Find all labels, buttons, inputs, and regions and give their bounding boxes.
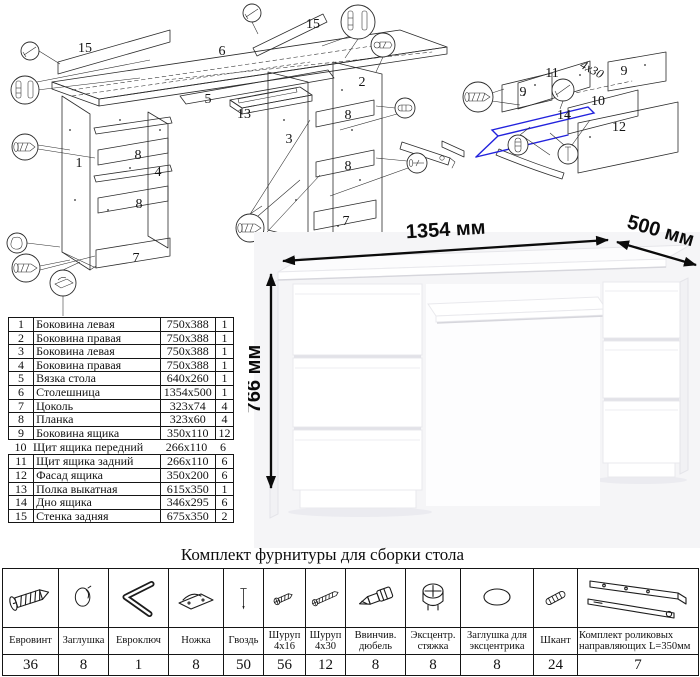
parts-cell-name: Фасад ящика <box>34 468 161 482</box>
parts-cell-num: 5 <box>9 372 34 386</box>
parts-cell-qty: 1 <box>215 318 233 332</box>
hardware-row <box>3 569 699 628</box>
parts-row: 3Боковина левая750x3881 <box>9 345 234 359</box>
parts-cell-qty: 6 <box>215 455 233 469</box>
parts-cell-name: Боковина правая <box>34 358 161 372</box>
nail-icon <box>224 569 264 628</box>
part-number-label: 15 <box>78 41 92 56</box>
parts-cell-qty: 1 <box>215 482 233 496</box>
part-number-label: 13 <box>237 107 251 122</box>
parts-table-segment: 11Щит ящика задний266x110612Фасад ящика3… <box>8 454 234 523</box>
parts-list-table: 1Боковина левая750x38812Боковина правая7… <box>8 317 236 523</box>
parts-cell-name: Стенка задняя <box>34 509 161 523</box>
parts-cell-qty: 6 <box>215 468 233 482</box>
hardware-name: Шуруп 4x30 <box>306 628 346 655</box>
parts-cell-size: 350x200 <box>160 468 215 482</box>
parts-cell: 10 <box>8 440 33 455</box>
hardware-name: Заглушка <box>59 628 109 655</box>
parts-cell-size: 750x388 <box>160 345 215 359</box>
drawer-rails-icon <box>578 569 699 628</box>
part-number-label: 12 <box>612 120 626 135</box>
part-number-label: 2 <box>359 75 366 90</box>
parts-cell-num: 15 <box>9 509 34 523</box>
part-number-label: 7 <box>133 251 140 266</box>
hardware-name: Шкант <box>534 628 578 655</box>
leader-lines <box>492 89 590 155</box>
wood-dowel-icon <box>534 569 578 628</box>
parts-cell-name: Щит ящика задний <box>34 455 161 469</box>
parts-cell-num: 1 <box>9 318 34 332</box>
parts-cell-num: 7 <box>9 399 34 413</box>
dimension-label: 766 мм <box>248 345 265 414</box>
parts-cell-qty: 2 <box>215 509 233 523</box>
parts-cell-qty: 1 <box>215 345 233 359</box>
parts-cell-num: 3 <box>9 345 34 359</box>
part-number-label: 8 <box>345 159 352 174</box>
hardware-qty: 24 <box>534 655 578 676</box>
parts-cell-num: 6 <box>9 385 34 399</box>
parts-cell-num: 9 <box>9 426 34 440</box>
part-number-label: 14 <box>557 108 571 123</box>
parts-cell-num: 11 <box>9 455 34 469</box>
parts-cell-name: Боковина левая <box>34 345 161 359</box>
hardware-qty: 36 <box>3 655 59 676</box>
part-number-label: 9 <box>621 64 628 79</box>
part-number-label: 1 <box>76 156 83 171</box>
parts-cell-size: 615x350 <box>160 482 215 496</box>
parts-row: 10Щит ящика передний266x1106 <box>8 440 234 454</box>
hex-key-icon <box>109 569 169 628</box>
hardware-qty: 12 <box>306 655 346 676</box>
parts-cell-qty: 1 <box>215 331 233 345</box>
parts-cell-size: 640x260 <box>160 372 215 386</box>
assembly-instruction-sheet: 156152513381848877 <box>0 0 700 677</box>
parts-cell-qty: 4 <box>215 399 233 413</box>
parts-cell-qty: 1 <box>215 372 233 386</box>
hardware-kit-table: ЕвровинтЗаглушкаЕвроключНожкаГвоздьШуруп… <box>2 568 699 676</box>
part-number-label: 8 <box>135 148 142 163</box>
parts-cell-name: Столешница <box>34 385 161 399</box>
parts-cell-qty: 1 <box>215 358 233 372</box>
hardware-qty: 8 <box>346 655 406 676</box>
part-number-label: 9 <box>520 85 527 100</box>
part-number-label: 4 <box>155 165 162 180</box>
parts-row: 8Планка323x604 <box>9 413 234 427</box>
parts-cell-num: 8 <box>9 413 34 427</box>
parts-cell-size: 750x388 <box>160 358 215 372</box>
part-number-label: 5 <box>205 92 212 107</box>
dowel-screw-icon <box>346 569 406 628</box>
hardware-name: Ножка <box>169 628 224 655</box>
part-number-label: 15 <box>306 17 320 32</box>
parts-row: 2Боковина правая750x3881 <box>9 331 234 345</box>
part-number-label: 8 <box>345 108 352 123</box>
part-number-label: 4x30 <box>578 58 607 82</box>
parts-cell-size: 266x110 <box>160 455 215 469</box>
part-number-label: 11 <box>545 66 558 81</box>
hardware-name: Евровинт <box>3 628 59 655</box>
foot-icon <box>169 569 224 628</box>
hardware-name: Ввинчив. дюбель <box>346 628 406 655</box>
part-number-label: 6 <box>219 44 226 59</box>
hardware-name: Евроключ <box>109 628 169 655</box>
parts-row: 14Дно ящика346x2956 <box>9 496 234 510</box>
parts-cell-size: 350x110 <box>160 426 215 440</box>
parts-cell-size: 750x388 <box>160 331 215 345</box>
hardware-row: 36818505612888247 <box>3 655 699 676</box>
hardware-qty: 8 <box>406 655 461 676</box>
cam-cap-icon <box>461 569 534 628</box>
parts-cell-name: Боковина левая <box>34 318 161 332</box>
screw-30-icon <box>306 569 346 628</box>
parts-cell-qty: 4 <box>215 413 233 427</box>
hardware-qty: 1 <box>109 655 169 676</box>
euro-screw-icon <box>3 569 59 628</box>
desk-render <box>270 245 690 518</box>
parts-row: 5Вязка стола640x2601 <box>9 372 234 386</box>
parts-cell-num: 13 <box>9 482 34 496</box>
parts-cell-qty: 6 <box>215 496 233 510</box>
hardware-qty: 7 <box>578 655 699 676</box>
parts-row: 7Цоколь323x744 <box>9 399 234 413</box>
parts-cell-name: Боковина ящика <box>34 426 161 440</box>
parts-row: 12Фасад ящика350x2006 <box>9 468 234 482</box>
hardware-qty: 56 <box>264 655 306 676</box>
parts-cell-size: 675x350 <box>160 509 215 523</box>
parts-cell-qty: 12 <box>215 426 233 440</box>
hardware-name: Эксцентр. стяжка <box>406 628 461 655</box>
hardware-name: Комплект роликовых направляющих L=350мм <box>578 628 699 655</box>
parts-cell-name: Полка выкатная <box>34 482 161 496</box>
parts-cell-name: Вязка стола <box>34 372 161 386</box>
parts-cell-name: Дно ящика <box>34 496 161 510</box>
part-number-labels: 11991014124x30 <box>520 58 628 135</box>
parts-cell-num: 2 <box>9 331 34 345</box>
parts-cell-name: Цоколь <box>34 399 161 413</box>
parts-cell: Щит ящика передний <box>33 440 159 455</box>
hardware-name: Шуруп 4x16 <box>264 628 306 655</box>
parts-row: 9Боковина ящика350x11012 <box>9 426 234 440</box>
parts-cell-num: 12 <box>9 468 34 482</box>
hardware-qty: 8 <box>59 655 109 676</box>
parts-cell: 266x110 <box>159 440 214 455</box>
hardware-qty: 8 <box>461 655 534 676</box>
hardware-name: Гвоздь <box>224 628 264 655</box>
part-number-label: 3 <box>286 132 293 147</box>
hardware-row: ЕвровинтЗаглушкаЕвроключНожкаГвоздьШуруп… <box>3 628 699 655</box>
cam-lock-icon <box>406 569 461 628</box>
hardware-name: Заглушка для эксцентрика <box>461 628 534 655</box>
hardware-qty: 8 <box>169 655 224 676</box>
part-number-label: 8 <box>136 197 143 212</box>
parts-cell-size: 323x60 <box>160 413 215 427</box>
parts-cell-num: 4 <box>9 358 34 372</box>
parts-row: 1Боковина левая750x3881 <box>9 318 234 332</box>
parts-cell-num: 14 <box>9 496 34 510</box>
parts-cell-name: Планка <box>34 413 161 427</box>
parts-row: 6Столешница1354x5001 <box>9 385 234 399</box>
hardware-qty: 50 <box>224 655 264 676</box>
desk-dimensions-illustration: 1354 мм500 мм766 мм <box>248 212 700 552</box>
middle-parts <box>180 70 334 114</box>
parts-table-segment: 1Боковина левая750x38812Боковина правая7… <box>8 317 234 440</box>
part-number-label: 10 <box>591 94 605 109</box>
left-pedestal-parts <box>62 96 172 270</box>
hardware-kit-title: Комплект фурнитуры для сборки стола <box>0 545 645 565</box>
back-strip-parts <box>58 14 327 74</box>
parts-row: 4Боковина правая750x3881 <box>9 358 234 372</box>
parts-row: 11Щит ящика задний266x1106 <box>9 455 234 469</box>
parts-cell-size: 346x295 <box>160 496 215 510</box>
parts-cell-size: 1354x500 <box>160 385 215 399</box>
hole-marks <box>69 89 361 227</box>
parts-cell-name: Боковина правая <box>34 331 161 345</box>
drawer-exploded-diagram: 11991014124x30 <box>440 5 700 220</box>
parts-row: 13Полка выкатная615x3501 <box>9 482 234 496</box>
screw-16-icon <box>264 569 306 628</box>
parts-cell-size: 750x388 <box>160 318 215 332</box>
cap-icon <box>59 569 109 628</box>
parts-cell-size: 323x74 <box>160 399 215 413</box>
parts-row: 15Стенка задняя675x3502 <box>9 509 234 523</box>
parts-cell: 6 <box>214 440 232 455</box>
parts-cell-qty: 1 <box>215 385 233 399</box>
